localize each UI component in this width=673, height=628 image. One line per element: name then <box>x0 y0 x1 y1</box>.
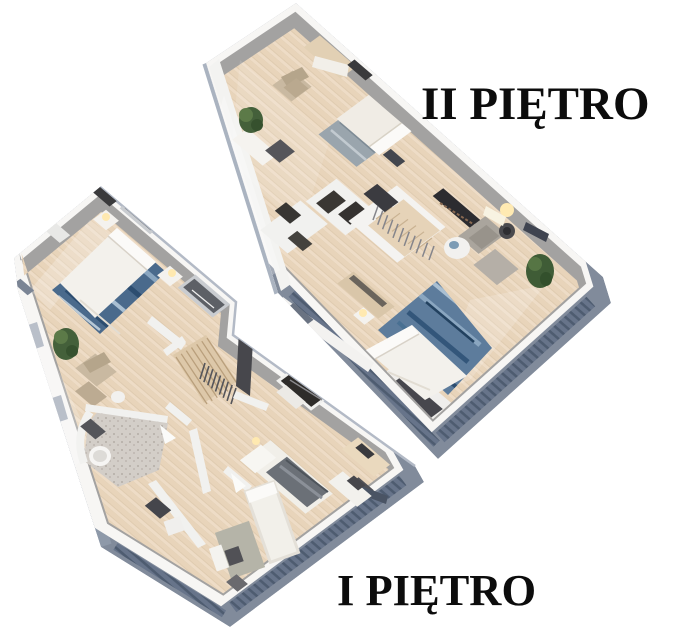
svg-text:I PIĘTRO: I PIĘTRO <box>337 565 536 615</box>
svg-text:II PIĘTRO: II PIĘTRO <box>421 78 650 130</box>
